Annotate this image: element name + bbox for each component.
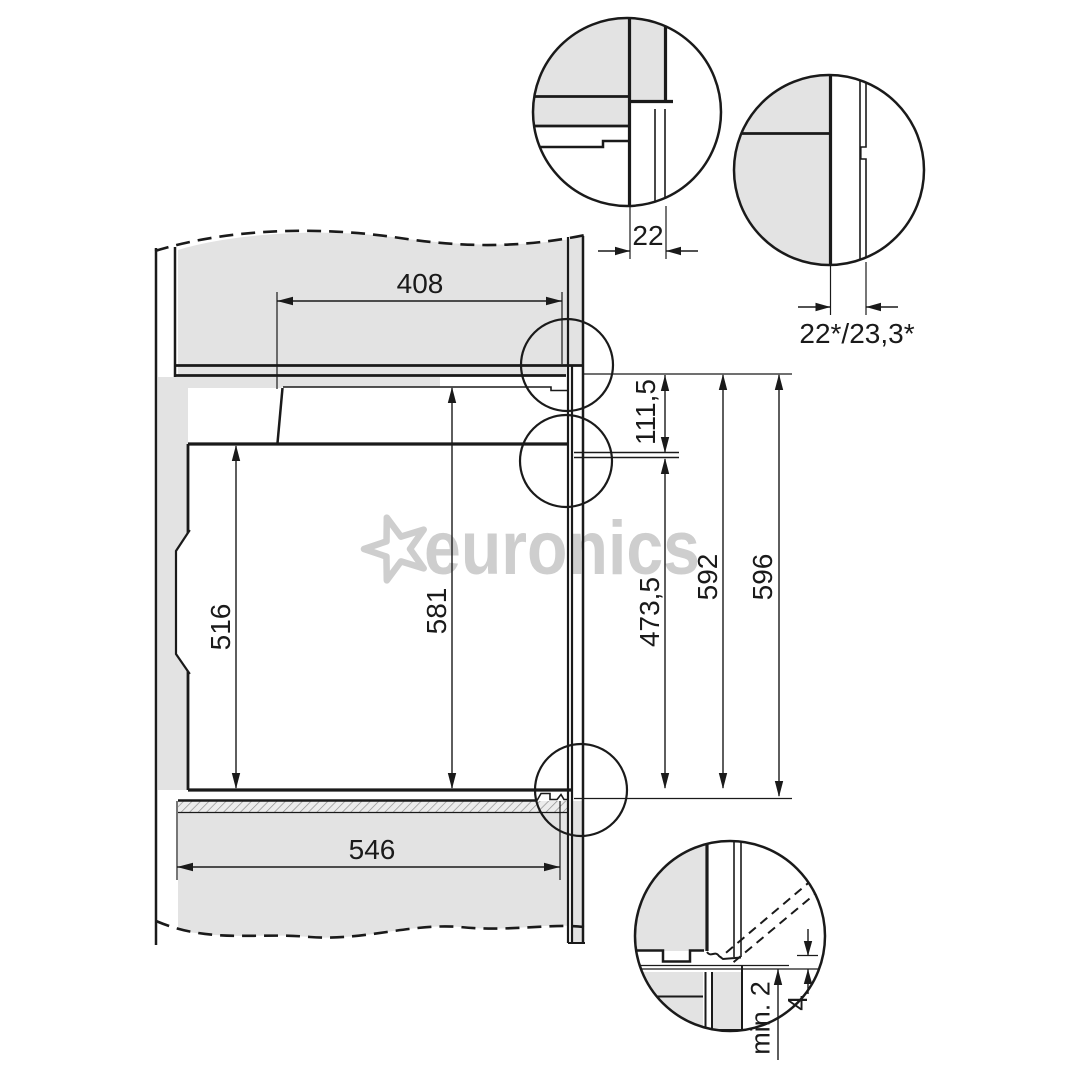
dim-bottom-offset-label: 4 [782,995,813,1011]
dim-top-left-gap-label: 22 [632,220,663,251]
dim-total-height-label: 596 [747,554,778,601]
dimension-top-offset: 111,5 [584,374,792,453]
detail-circle-bottom-right: 4 min. 2 [633,839,825,1060]
dim-front-height-label: 581 [421,588,452,635]
dim-bottom-width-label: 546 [349,834,396,865]
oven-installation-diagram: euronics [0,0,1080,1080]
dim-bottom-clearance-label: min. 2 [745,981,775,1055]
dim-niche-height-label: 516 [205,604,236,651]
dimension-body-height: 592 [692,374,727,789]
detail-circle-top-right: 22*/23,3* [732,73,924,349]
installation-diagram-page: euronics [0,0,1080,1080]
dim-top-width-label: 408 [397,268,444,299]
dim-top-right-gap-label: 22*/23,3* [799,318,914,349]
dim-body-height-label: 592 [692,554,723,601]
dim-top-offset-label: 111,5 [630,379,661,445]
detail-circle-top-left: 22 [531,16,721,259]
dim-lower-front-height-label: 473,5 [634,577,665,647]
